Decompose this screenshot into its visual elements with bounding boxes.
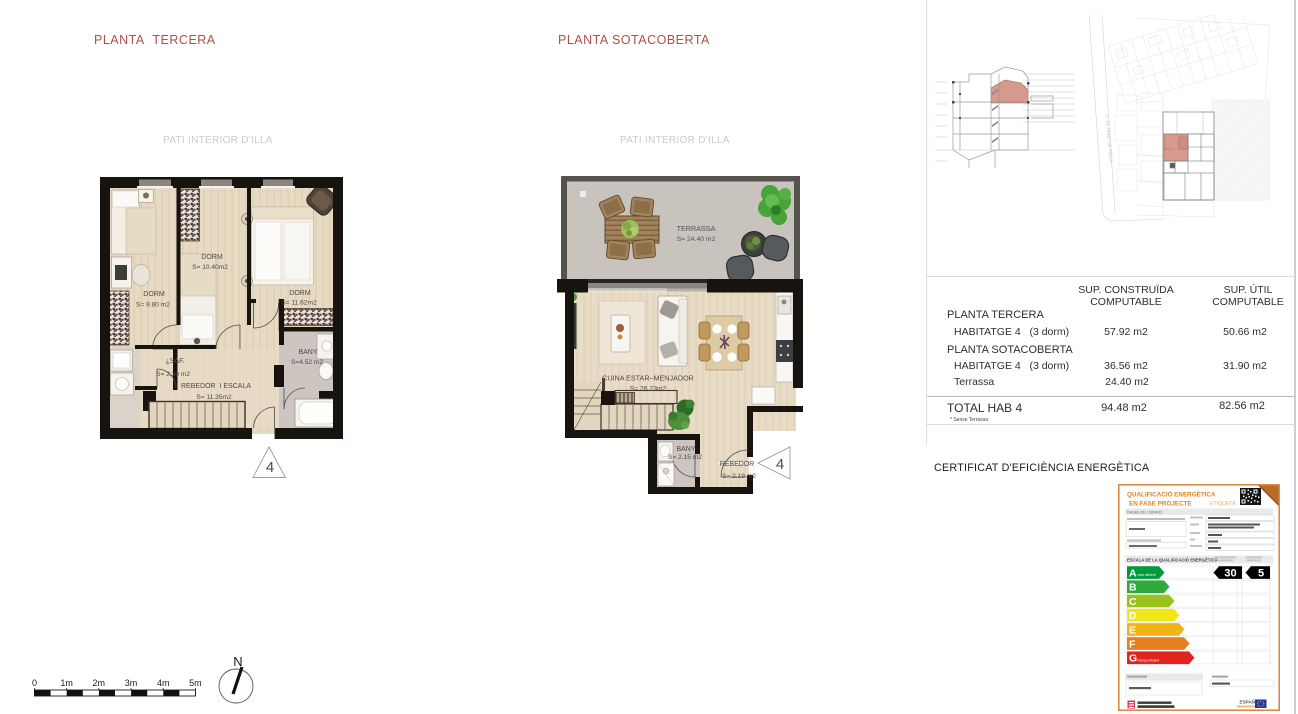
svg-text:4: 4	[776, 456, 784, 473]
svg-text:¿SAF.: ¿SAF.	[165, 358, 184, 365]
svg-text:D: D	[1129, 610, 1137, 622]
svg-text:5m: 5m	[189, 678, 202, 688]
svg-text:ESCALA DE LA QUALIFICACIÓ ENER: ESCALA DE LA QUALIFICACIÓ ENERGÈTICA	[1127, 558, 1218, 563]
svg-text:N: N	[233, 654, 242, 669]
svg-text:REBEDOR: REBEDOR	[720, 461, 755, 468]
svg-text:S= 11.62m2: S= 11.62m2	[281, 300, 317, 307]
svg-text:S= 9.80 m2: S= 9.80 m2	[136, 302, 170, 309]
svg-text:4m: 4m	[157, 678, 170, 688]
svg-text:0: 0	[32, 678, 37, 688]
svg-text:DADES DE L'EDIFICI: DADES DE L'EDIFICI	[1127, 511, 1162, 515]
svg-text:A: A	[1129, 568, 1137, 580]
svg-text:BANY: BANY	[298, 349, 317, 356]
svg-text:30: 30	[1224, 567, 1236, 579]
svg-text:S= 11.35m2: S= 11.35m2	[196, 394, 232, 401]
svg-text:4: 4	[266, 459, 274, 476]
svg-text:CUINA ESTAR–MENJADOR: CUINA ESTAR–MENJADOR	[602, 374, 694, 383]
svg-text:TERRASSA: TERRASSA	[677, 224, 716, 233]
svg-text:S= 24.40 m2: S= 24.40 m2	[677, 236, 716, 243]
svg-text:G: G	[1129, 653, 1137, 665]
svg-text:5: 5	[1258, 567, 1264, 579]
svg-text:REBEDOR I ESCALA: REBEDOR I ESCALA	[181, 383, 251, 390]
svg-text:ETIQUETA: ETIQUETA	[1210, 501, 1236, 507]
svg-text:S= 2.19 m2: S= 2.19 m2	[722, 473, 756, 480]
svg-text:S= 2.15 m2: S= 2.15 m2	[668, 454, 702, 461]
svg-text:S= 10.40m2: S= 10.40m2	[192, 264, 228, 271]
svg-text:C: C	[1129, 596, 1137, 608]
svg-text:3m: 3m	[125, 678, 138, 688]
svg-text:menys eficient: menys eficient	[1138, 658, 1160, 662]
svg-text:B: B	[1129, 582, 1137, 594]
svg-text:més eficient: més eficient	[1138, 573, 1156, 577]
svg-text:S= 26.23m2: S= 26.23m2	[630, 385, 667, 392]
svg-text:F: F	[1129, 639, 1136, 651]
svg-text:DORM: DORM	[289, 290, 311, 297]
svg-text:2m: 2m	[93, 678, 106, 688]
svg-text:S=4.52 m2: S=4.52 m2	[291, 359, 323, 366]
svg-text:C. DE PERE DE PLEJA: C. DE PERE DE PLEJA	[1104, 115, 1114, 163]
svg-text:QUALIFICACIÓ ENERGÈTICA: QUALIFICACIÓ ENERGÈTICA	[1127, 490, 1216, 499]
svg-text:S= 2.30 m2: S= 2.30 m2	[156, 371, 190, 378]
svg-text:BANY: BANY	[676, 446, 695, 453]
svg-text:DORM: DORM	[143, 291, 165, 298]
svg-text:DORM: DORM	[201, 254, 223, 261]
svg-text:E: E	[1129, 624, 1136, 636]
svg-text:1m: 1m	[60, 678, 73, 688]
svg-text:EN FASE PROJECTE: EN FASE PROJECTE	[1129, 501, 1192, 508]
